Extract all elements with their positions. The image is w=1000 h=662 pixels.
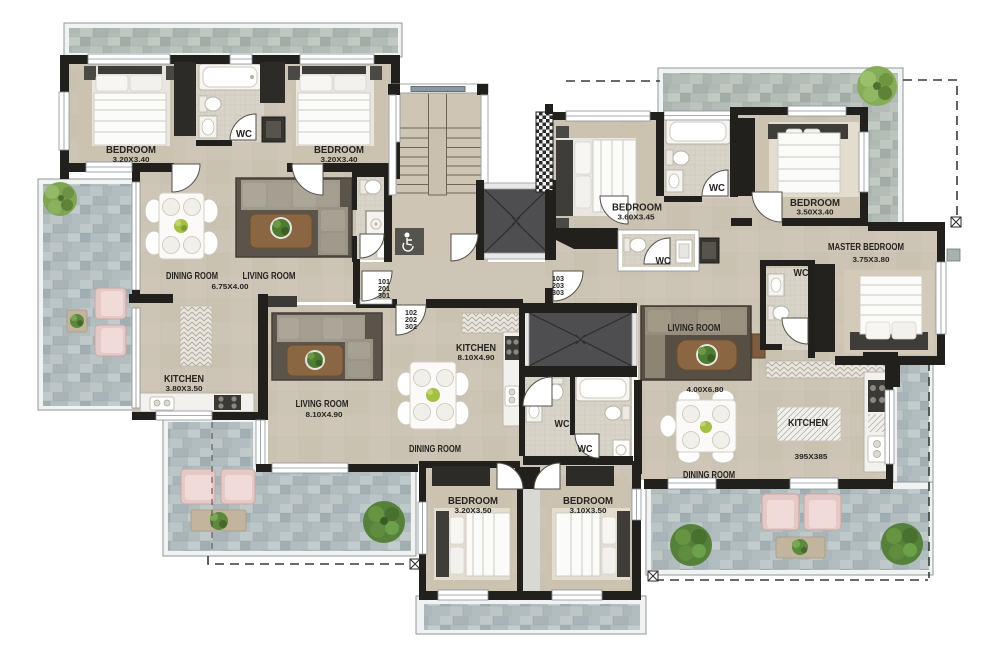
svg-text:MASTER BEDROOM: MASTER BEDROOM	[828, 241, 904, 253]
svg-text:302: 302	[405, 322, 417, 331]
svg-text:6.75X4.00: 6.75X4.00	[212, 282, 249, 291]
svg-text:WC: WC	[656, 256, 671, 267]
svg-text:395X385: 395X385	[795, 452, 829, 461]
svg-text:LIVING ROOM: LIVING ROOM	[243, 270, 296, 282]
svg-text:3.20X3.40: 3.20X3.40	[113, 155, 150, 164]
svg-text:8.10X4.90: 8.10X4.90	[458, 353, 495, 362]
svg-text:WC: WC	[794, 268, 809, 279]
svg-text:DINING ROOM: DINING ROOM	[409, 443, 461, 455]
svg-text:DINING ROOM: DINING ROOM	[166, 270, 218, 282]
svg-text:LIVING ROOM: LIVING ROOM	[296, 398, 349, 410]
svg-text:301: 301	[378, 291, 390, 300]
svg-text:WC: WC	[236, 128, 252, 140]
svg-text:KITCHEN: KITCHEN	[788, 417, 828, 429]
svg-text:4.00X6.80: 4.00X6.80	[687, 385, 724, 394]
svg-text:303: 303	[552, 288, 564, 297]
svg-text:3.80X3.50: 3.80X3.50	[166, 384, 203, 393]
svg-text:3.20X3.50: 3.20X3.50	[455, 506, 492, 515]
svg-text:3.20X3.40: 3.20X3.40	[321, 155, 358, 164]
svg-text:8.10X4.90: 8.10X4.90	[306, 410, 343, 419]
svg-text:3.75X3.80: 3.75X3.80	[853, 255, 890, 264]
svg-text:WC: WC	[578, 444, 593, 455]
svg-text:DINING ROOM: DINING ROOM	[683, 469, 735, 481]
svg-text:WC: WC	[709, 182, 725, 194]
svg-text:3.50X3.40: 3.50X3.40	[797, 208, 834, 217]
svg-text:WC: WC	[555, 419, 570, 430]
svg-text:3.10X3.50: 3.10X3.50	[570, 506, 607, 515]
svg-text:3.60X3.45: 3.60X3.45	[618, 213, 656, 222]
svg-text:LIVING ROOM: LIVING ROOM	[668, 322, 721, 334]
